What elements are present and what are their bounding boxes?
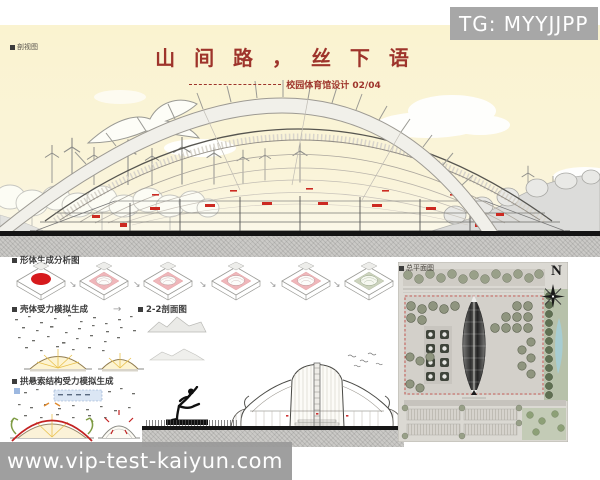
arch-glow-diagrams xyxy=(18,342,148,374)
title-block: 山 间 路 ， 丝 下 语 校园体育馆设计 02/04 xyxy=(135,42,435,91)
red-dash-dome-diagram xyxy=(96,400,142,446)
arrow-icon: ↘ xyxy=(69,280,77,290)
poster-title: 山 间 路 ， 丝 下 语 xyxy=(135,42,435,71)
arrow-icon: ↘ xyxy=(269,280,277,290)
site-watermark: www.vip-test-kaiyun.com xyxy=(0,442,292,480)
presentation-board: TG: MYYJJPP 剖视图 山 间 路 ， 丝 下 语 校园体育馆设计 02… xyxy=(0,0,600,480)
red-arc-force-diagram xyxy=(6,398,98,448)
site-plan-label: 总平面图 xyxy=(399,263,434,273)
ground-texture-band xyxy=(0,236,600,257)
arrow-icon: ↘ xyxy=(133,280,141,290)
site-plan xyxy=(398,262,568,442)
bullet-square-icon xyxy=(12,307,17,312)
axon-thumbnail-1 xyxy=(15,261,67,305)
bullet-square-icon xyxy=(138,307,143,312)
poster-subtitle: 校园体育馆设计 02/04 xyxy=(286,78,380,91)
axon-thumbnail-2 xyxy=(78,261,130,305)
corner-label: 剖视图 xyxy=(10,42,38,52)
arrow-icon: ↘ xyxy=(333,280,341,290)
axon-thumbnail-4 xyxy=(210,261,262,305)
birds-sketch xyxy=(348,353,382,367)
corner-label-text: 剖视图 xyxy=(17,42,38,52)
north-letter: N xyxy=(551,263,562,280)
subtitle-row: 校园体育馆设计 02/04 xyxy=(135,78,435,91)
elevation-drawing xyxy=(228,350,406,428)
tg-watermark-text: TG: MYYJJPP xyxy=(459,12,588,36)
axon-thumbnail-5 xyxy=(280,261,332,305)
axon-thumbnail-3 xyxy=(142,261,194,305)
tg-watermark: TG: MYYJJPP xyxy=(450,7,598,40)
dash-line xyxy=(189,84,281,85)
bullet-square-icon xyxy=(12,379,17,384)
bullet-square-icon xyxy=(10,45,15,50)
site-watermark-text: www.vip-test-kaiyun.com xyxy=(7,449,283,473)
bullet-square-icon xyxy=(399,266,404,271)
arrow-icon: ↘ xyxy=(199,280,207,290)
mountain-sketch xyxy=(146,314,208,364)
axon-thumbnail-6 xyxy=(343,261,395,305)
